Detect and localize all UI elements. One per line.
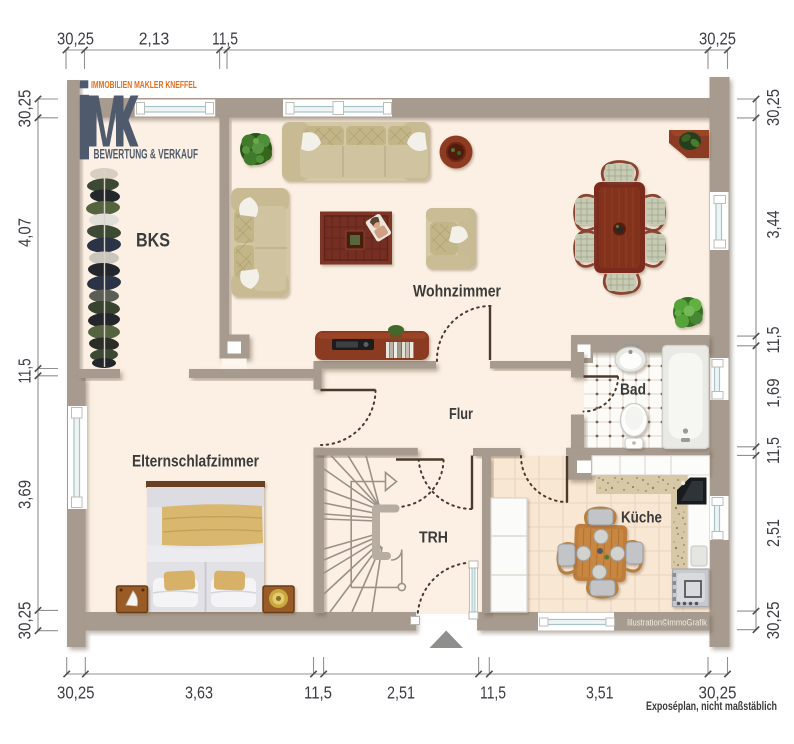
- svg-text:BKS: BKS: [136, 231, 170, 252]
- svg-text:Elternschlafzimmer: Elternschlafzimmer: [132, 453, 259, 471]
- svg-text:Bad: Bad: [620, 382, 646, 399]
- svg-text:Exposéplan, nicht maßstäblich: Exposéplan, nicht maßstäblich: [646, 701, 777, 713]
- svg-text:30,25: 30,25: [15, 602, 35, 640]
- svg-text:Wohnzimmer: Wohnzimmer: [413, 283, 501, 301]
- svg-text:3,51: 3,51: [586, 683, 614, 703]
- svg-text:TRH: TRH: [419, 530, 448, 547]
- svg-text:2,51: 2,51: [763, 519, 783, 547]
- svg-text:4,07: 4,07: [15, 218, 35, 247]
- svg-text:2,51: 2,51: [387, 683, 415, 703]
- svg-text:3,44: 3,44: [763, 210, 783, 238]
- svg-text:30,25: 30,25: [699, 29, 736, 49]
- svg-text:2,13: 2,13: [139, 29, 170, 49]
- svg-text:30,25: 30,25: [15, 90, 35, 128]
- svg-text:30,25: 30,25: [763, 89, 783, 126]
- svg-text:3,69: 3,69: [15, 480, 35, 509]
- svg-text:30,25: 30,25: [699, 683, 737, 703]
- svg-text:11,5: 11,5: [763, 327, 783, 354]
- svg-text:11,5: 11,5: [763, 437, 783, 464]
- svg-text:11,5: 11,5: [212, 29, 238, 49]
- svg-text:BEWERTUNG & VERKAUF: BEWERTUNG & VERKAUF: [94, 147, 199, 162]
- svg-text:11,5: 11,5: [304, 683, 332, 703]
- svg-text:11,5: 11,5: [15, 359, 35, 384]
- svg-text:3,63: 3,63: [185, 683, 213, 703]
- svg-text:30,25: 30,25: [57, 29, 94, 49]
- svg-text:30,25: 30,25: [763, 601, 783, 639]
- svg-text:1,69: 1,69: [763, 379, 783, 408]
- svg-text:Illustration©immoGrafik: Illustration©immoGrafik: [627, 618, 707, 628]
- svg-text:Flur: Flur: [449, 406, 473, 423]
- svg-text:IMMOBILIEN MAKLER KNEFFEL: IMMOBILIEN MAKLER KNEFFEL: [91, 80, 197, 91]
- svg-text:Küche: Küche: [621, 510, 662, 527]
- svg-text:30,25: 30,25: [57, 683, 95, 703]
- svg-text:11,5: 11,5: [480, 683, 506, 703]
